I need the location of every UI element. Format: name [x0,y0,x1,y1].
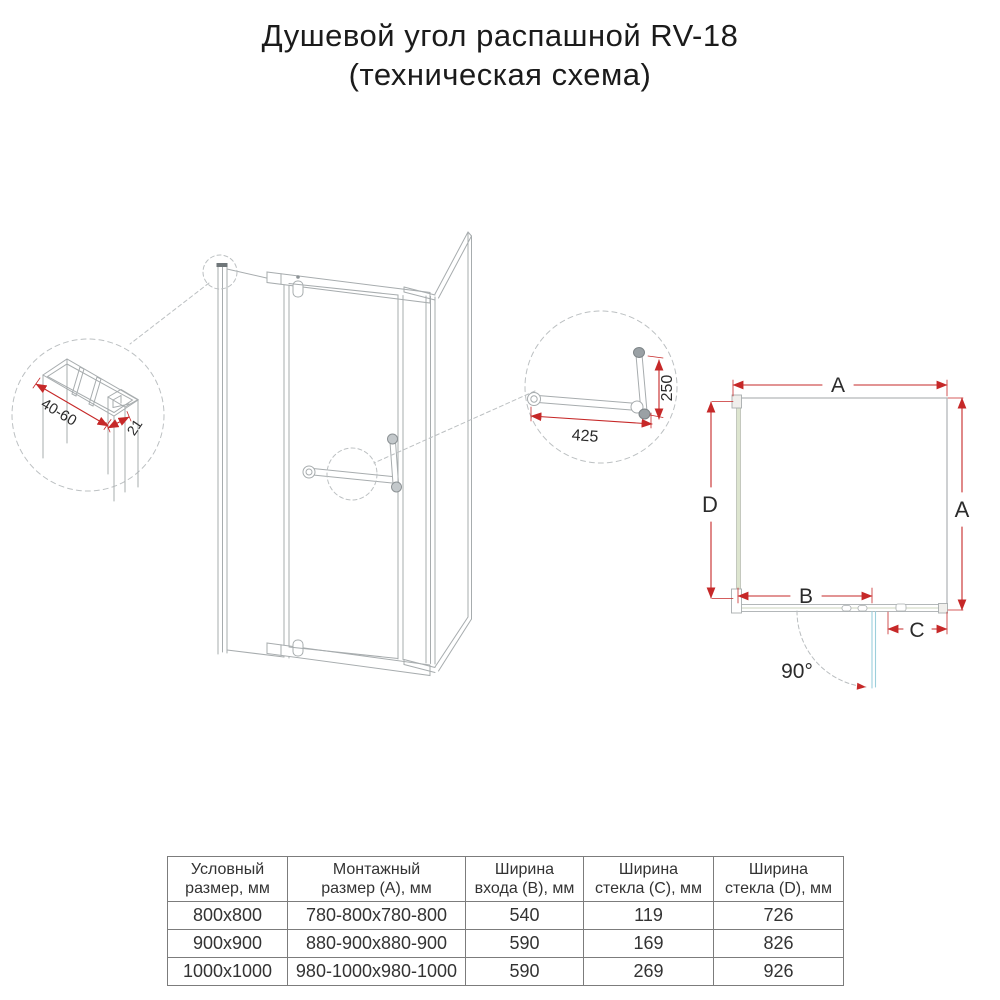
col-header-mounting-size: Монтажныйразмер (A), мм [288,857,466,902]
dim-label-wall-range: 40-60 [38,395,80,429]
dim-label-c-glass: C [909,619,924,642]
cell-mounting: 780-800x780-800 [288,902,466,930]
technical-drawing: 40-60 21 [0,0,1000,1000]
plan-view: A D A B C 90° [702,374,970,690]
cell-glass-d: 826 [714,930,844,958]
cell-nominal: 800x800 [168,902,288,930]
dim-label-profile-depth: 21 [123,416,145,438]
col-header-entry-width: Ширинавхода (B), мм [466,857,584,902]
cell-nominal: 1000x1000 [168,958,288,986]
detail-circle-handle [525,311,677,463]
table-row: 900x900 880-900x880-900 590 169 826 [168,930,844,958]
cell-entry: 590 [466,958,584,986]
table-row: 800x800 780-800x780-800 540 119 726 [168,902,844,930]
door-hinge-profile [284,281,289,659]
cell-glass-c: 119 [584,902,714,930]
col-header-glass-d-width: Ширинастекла (D), мм [714,857,844,902]
table-row: 1000x1000 980-1000x980-1000 590 269 926 [168,958,844,986]
towel-bar-handle-3d [303,434,402,492]
cell-glass-d: 726 [714,902,844,930]
cell-entry: 590 [466,930,584,958]
handle-detail-view: 425 250 [525,311,677,463]
col-header-glass-c-width: Ширинастекла (C), мм [584,857,714,902]
size-table: Условныйразмер, мм Монтажныйразмер (A), … [167,856,844,986]
cell-mounting: 880-900x880-900 [288,930,466,958]
side-glass-panel [435,232,472,671]
cell-glass-d: 926 [714,958,844,986]
col-header-nominal-size: Условныйразмер, мм [168,857,288,902]
plan-corner-blocks [732,395,948,613]
technical-scheme-page: Душевой угол распашной RV-18 (техническа… [0,0,1000,1000]
dim-label-towel-bar: 425 [571,427,599,446]
plan-open-door [872,612,876,689]
bottom-support-bar [267,640,430,676]
detail-circle-profile [12,339,164,491]
cell-entry: 540 [466,902,584,930]
isometric-view [130,232,535,676]
cell-nominal: 900x900 [168,930,288,958]
cell-mounting: 980-1000x980-1000 [288,958,466,986]
plan-glass-d [737,405,741,591]
cell-glass-c: 269 [584,958,714,986]
table-header-row: Условныйразмер, мм Монтажныйразмер (A), … [168,857,844,902]
dim-label-b-entry: B [799,585,813,608]
dim-label-a-top: A [831,374,845,397]
wall-profile-3d [217,263,228,654]
leader-to-profile-detail [130,283,209,344]
cell-glass-c: 169 [584,930,714,958]
callout-leaders [130,255,535,500]
corner-profile-3d [404,287,435,673]
dim-label-handle-height: 250 [659,375,676,402]
dim-label-a-right: A [955,497,970,522]
profile-detail-view: 40-60 21 [12,339,164,501]
door-angle-label: 90° [781,660,813,683]
plan-dimensions [711,380,963,634]
door-swing-arrow [857,683,866,690]
dim-label-d-left: D [702,492,718,517]
